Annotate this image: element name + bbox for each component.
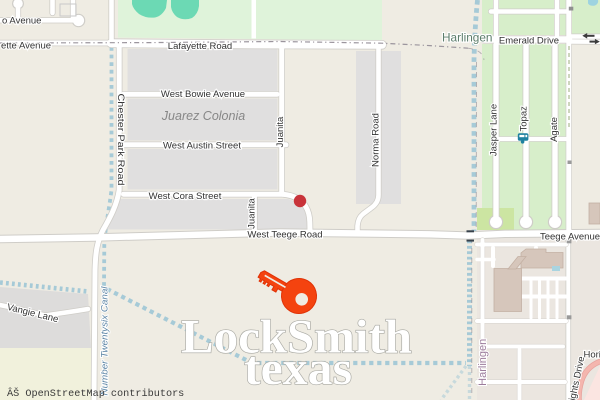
svg-text:ette Avenue: ette Avenue: [1, 41, 51, 52]
svg-text:Juarez Colonia: Juarez Colonia: [161, 109, 245, 123]
svg-text:Agate: Agate: [549, 117, 560, 142]
svg-text:Harlingen: Harlingen: [477, 339, 489, 386]
svg-text:West Austin Street: West Austin Street: [163, 141, 241, 152]
svg-text:Juanita: Juanita: [275, 116, 286, 147]
svg-text:Jasper Lane: Jasper Lane: [488, 104, 499, 156]
svg-text:Chester Park Road: Chester Park Road: [115, 94, 126, 186]
svg-text:ÂŠ OpenStreetMap contributors: ÂŠ OpenStreetMap contributors: [7, 386, 184, 400]
svg-text:Emerald Drive: Emerald Drive: [499, 36, 559, 47]
svg-text:West Teege Road: West Teege Road: [247, 229, 322, 240]
svg-text:West Bowie Avenue: West Bowie Avenue: [161, 89, 245, 100]
svg-text:Norma Road: Norma Road: [371, 113, 382, 167]
svg-text:Juanita: Juanita: [246, 197, 257, 228]
svg-text:Topaz: Topaz: [519, 106, 530, 132]
svg-text:Lafayette Road: Lafayette Road: [168, 41, 232, 52]
svg-text:Harlingen: Harlingen: [442, 31, 493, 45]
svg-text:Number Twentysix Canal: Number Twentysix Canal: [100, 286, 111, 396]
svg-text:o Avenue: o Avenue: [2, 16, 41, 27]
svg-text:West Cora Street: West Cora Street: [149, 191, 222, 202]
svg-text:texas: texas: [244, 342, 352, 395]
svg-text:Teege Avenue: Teege Avenue: [540, 232, 600, 243]
